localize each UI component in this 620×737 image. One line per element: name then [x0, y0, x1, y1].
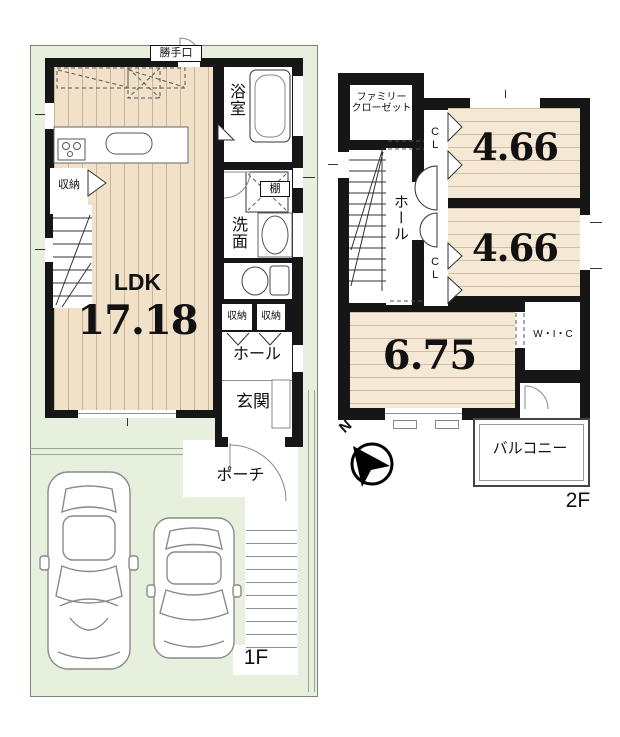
closet-a-label: CL: [428, 122, 442, 156]
window: [293, 213, 303, 257]
window: [293, 76, 303, 136]
window: [385, 408, 462, 420]
closet-left-label: 収納: [53, 178, 85, 193]
balcony-text: バルコニー: [493, 441, 568, 458]
hall-closet-b-label: 収納: [257, 309, 285, 324]
storage-text: 収納: [58, 179, 80, 191]
floor1-text: 1F: [244, 646, 269, 670]
window: [45, 238, 54, 262]
entrance-text: 玄関: [236, 392, 270, 411]
hall-1f-label: ホール: [224, 346, 290, 364]
exterior-step: [246, 556, 297, 557]
exterior-step: [246, 530, 297, 531]
porch-label: ポーチ: [183, 466, 298, 486]
window-mid-line: [385, 413, 462, 414]
closet-b-label: CL: [428, 252, 442, 286]
exterior-step: [246, 595, 297, 596]
bath-label: 浴室: [226, 76, 244, 124]
back-door-label: 勝手口: [150, 45, 202, 62]
entrance-door-opening: [228, 437, 285, 447]
window: [293, 168, 303, 188]
window: [78, 410, 176, 418]
window-tick: [303, 177, 315, 178]
bath-text: 浴室: [226, 83, 244, 117]
parking-boundary-line: [30, 448, 183, 449]
window-tick: [127, 418, 128, 426]
window-tick: [328, 164, 338, 165]
shelf-label: 棚: [260, 181, 290, 197]
room-toilet: [224, 263, 292, 299]
window-tick: [590, 268, 602, 269]
shelf-text: 棚: [270, 183, 281, 195]
window: [293, 345, 303, 372]
sliding-door-tab: [435, 420, 459, 429]
room-area-text: 6.75: [383, 334, 476, 379]
window: [45, 103, 54, 129]
entrance-label: 玄関: [228, 392, 278, 412]
parking-boundary-line: [30, 454, 183, 455]
staircase-1f: [53, 205, 92, 308]
back-door-text: 勝手口: [160, 47, 193, 59]
hall-landing: [349, 291, 412, 303]
ldk-area-label: 17.18: [80, 297, 195, 345]
ldk-area-text: 17.18: [77, 299, 197, 344]
plot-boundary-line: [314, 390, 315, 692]
exterior-step: [246, 569, 297, 570]
window-tick: [35, 114, 45, 115]
room-area-text: 4.66: [472, 127, 558, 168]
family-closet-text: クローゼット: [352, 103, 412, 114]
closet-text: CL: [429, 126, 441, 152]
window-tick: [505, 90, 506, 98]
exterior-step: [246, 582, 297, 583]
bedroom-a-area-label: 4.66: [460, 126, 570, 170]
staircase-2f: [349, 150, 386, 291]
hall-text: ホール: [233, 346, 281, 364]
hall-text: ホール: [391, 194, 408, 242]
balcony-door-notch: [520, 383, 580, 420]
bedroom-b-area-label: 4.66: [460, 227, 570, 271]
window-tick: [590, 222, 602, 223]
washroom-text: 洗面: [228, 216, 246, 250]
compass-icon: [352, 444, 392, 487]
floorplan-canvas: 勝手口 浴室 収納 棚 洗面 LDK 17.18 収納 収納 ホール 玄関 ポー…: [0, 0, 620, 737]
wic-label: W・I・C: [524, 327, 582, 343]
entrance-step-line: [222, 380, 292, 381]
sliding-door-tab: [393, 420, 417, 429]
exterior-step: [246, 621, 297, 622]
compass-north-text: N: [336, 417, 355, 437]
family-closet-text: ファミリー: [357, 92, 407, 103]
plot-boundary-line: [308, 390, 309, 692]
bedroom-c-area-label: 6.75: [372, 332, 487, 380]
family-closet-label: ファミリー クローゼット: [351, 88, 412, 118]
ldk-text: LDK: [114, 270, 161, 296]
room-area-text: 4.66: [472, 228, 558, 269]
window: [470, 98, 540, 108]
wic-text: W・I・C: [533, 329, 572, 340]
exterior-step: [246, 634, 297, 635]
floor1-label: 1F: [228, 645, 284, 671]
hall-closet-a-label: 収納: [222, 309, 252, 324]
storage-text: 収納: [227, 311, 247, 322]
floor2-text: 2F: [566, 489, 591, 513]
closet-text: CL: [429, 256, 441, 282]
window-mid-line: [78, 413, 176, 414]
exterior-step: [246, 608, 297, 609]
exterior-step: [246, 543, 297, 544]
window-tick: [35, 249, 45, 250]
floor2-label: 2F: [550, 488, 606, 514]
balcony-label: バルコニー: [476, 440, 584, 458]
hall-door-zone: [412, 182, 448, 240]
window: [580, 215, 590, 270]
hall-2f-label: ホール: [391, 180, 408, 256]
ldk-label: LDK: [95, 270, 180, 296]
washroom-label: 洗面: [228, 210, 246, 256]
porch-text: ポーチ: [216, 467, 264, 485]
window: [338, 152, 350, 178]
storage-text: 収納: [261, 311, 281, 322]
